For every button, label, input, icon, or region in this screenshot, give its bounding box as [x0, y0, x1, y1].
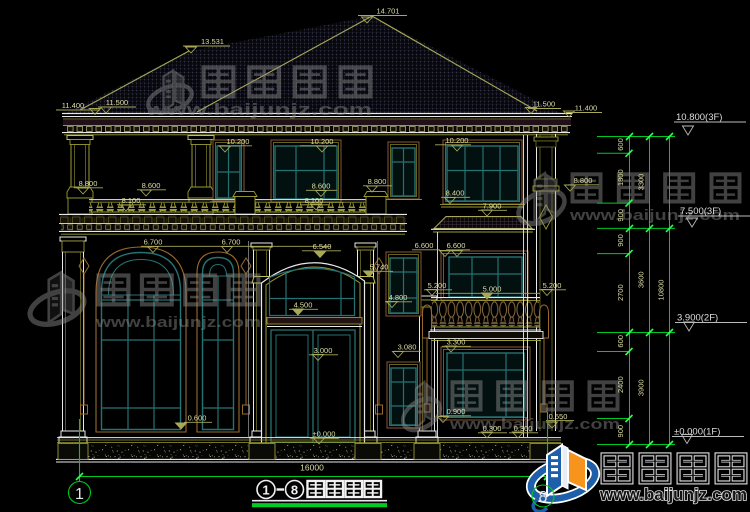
- svg-text:8.600: 8.600: [142, 181, 161, 190]
- svg-text:6.540: 6.540: [313, 242, 332, 251]
- svg-text:11.400: 11.400: [62, 101, 84, 110]
- svg-text:3600: 3600: [637, 271, 646, 288]
- svg-text:10.200: 10.200: [227, 137, 250, 146]
- svg-text:900: 900: [616, 209, 625, 222]
- svg-text:11.500: 11.500: [106, 98, 128, 107]
- svg-text:6.700: 6.700: [144, 238, 163, 247]
- svg-text:900: 900: [616, 425, 625, 438]
- svg-text:0.300: 0.300: [514, 424, 533, 433]
- svg-text:900: 900: [616, 234, 625, 247]
- svg-text:±0.000(1F): ±0.000(1F): [674, 427, 720, 438]
- svg-text:10.200: 10.200: [311, 137, 334, 146]
- svg-text:3.000: 3.000: [314, 346, 333, 355]
- svg-text:5.740: 5.740: [370, 263, 389, 272]
- svg-text:1: 1: [262, 483, 269, 498]
- svg-text:10800: 10800: [657, 280, 666, 301]
- svg-text:5.000: 5.000: [483, 285, 502, 294]
- svg-text:3.080: 3.080: [398, 343, 417, 352]
- svg-text:14.701: 14.701: [377, 7, 400, 16]
- svg-text:0.600: 0.600: [188, 414, 207, 423]
- svg-text:6.600: 6.600: [447, 241, 466, 250]
- svg-text:10.200: 10.200: [446, 136, 469, 145]
- svg-text:8.600: 8.600: [312, 182, 331, 191]
- svg-text:8: 8: [291, 483, 298, 498]
- svg-text:10.800(3F): 10.800(3F): [676, 112, 722, 123]
- svg-text:3.300: 3.300: [447, 338, 466, 347]
- svg-text:16000: 16000: [300, 463, 324, 473]
- svg-text:8.800: 8.800: [574, 176, 593, 185]
- svg-text:www.baijunjz.com: www.baijunjz.com: [599, 486, 747, 504]
- svg-text:5.200: 5.200: [543, 281, 562, 290]
- svg-text:www.baijunjz.com: www.baijunjz.com: [144, 101, 372, 119]
- svg-text:7.900: 7.900: [483, 202, 502, 211]
- svg-text:8.100: 8.100: [305, 196, 324, 205]
- svg-text:13.531: 13.531: [201, 37, 224, 46]
- svg-text:0.300: 0.300: [483, 424, 502, 433]
- svg-text:4.500: 4.500: [294, 301, 313, 310]
- svg-text:0.550: 0.550: [549, 412, 568, 421]
- svg-text:6.700: 6.700: [222, 238, 241, 247]
- svg-text:1800: 1800: [616, 169, 625, 186]
- svg-text:5.200: 5.200: [428, 281, 447, 290]
- svg-text:11.500: 11.500: [533, 100, 555, 109]
- svg-text:2700: 2700: [616, 284, 625, 301]
- svg-text:8.100: 8.100: [122, 196, 141, 205]
- svg-text:4.800: 4.800: [389, 293, 408, 302]
- svg-text:www.baijunjz.com: www.baijunjz.com: [95, 314, 261, 331]
- svg-text:8.800: 8.800: [368, 177, 387, 186]
- svg-text:www.baijunjz.com: www.baijunjz.com: [449, 416, 620, 433]
- svg-text:2400: 2400: [616, 376, 625, 393]
- svg-text:600: 600: [616, 138, 625, 151]
- svg-text:3300: 3300: [637, 174, 646, 191]
- svg-text:±0.000: ±0.000: [313, 430, 336, 439]
- svg-text:8.400: 8.400: [446, 189, 465, 198]
- svg-text:8.800: 8.800: [79, 179, 98, 188]
- svg-text:0.900: 0.900: [447, 407, 466, 416]
- svg-text:7.500(3F): 7.500(3F): [680, 206, 721, 217]
- svg-text:1: 1: [75, 486, 84, 503]
- svg-text:8: 8: [539, 489, 548, 506]
- svg-text:6.600: 6.600: [415, 241, 434, 250]
- svg-text:600: 600: [616, 335, 625, 348]
- svg-text:3900: 3900: [637, 379, 646, 396]
- svg-text:11.400: 11.400: [575, 104, 597, 113]
